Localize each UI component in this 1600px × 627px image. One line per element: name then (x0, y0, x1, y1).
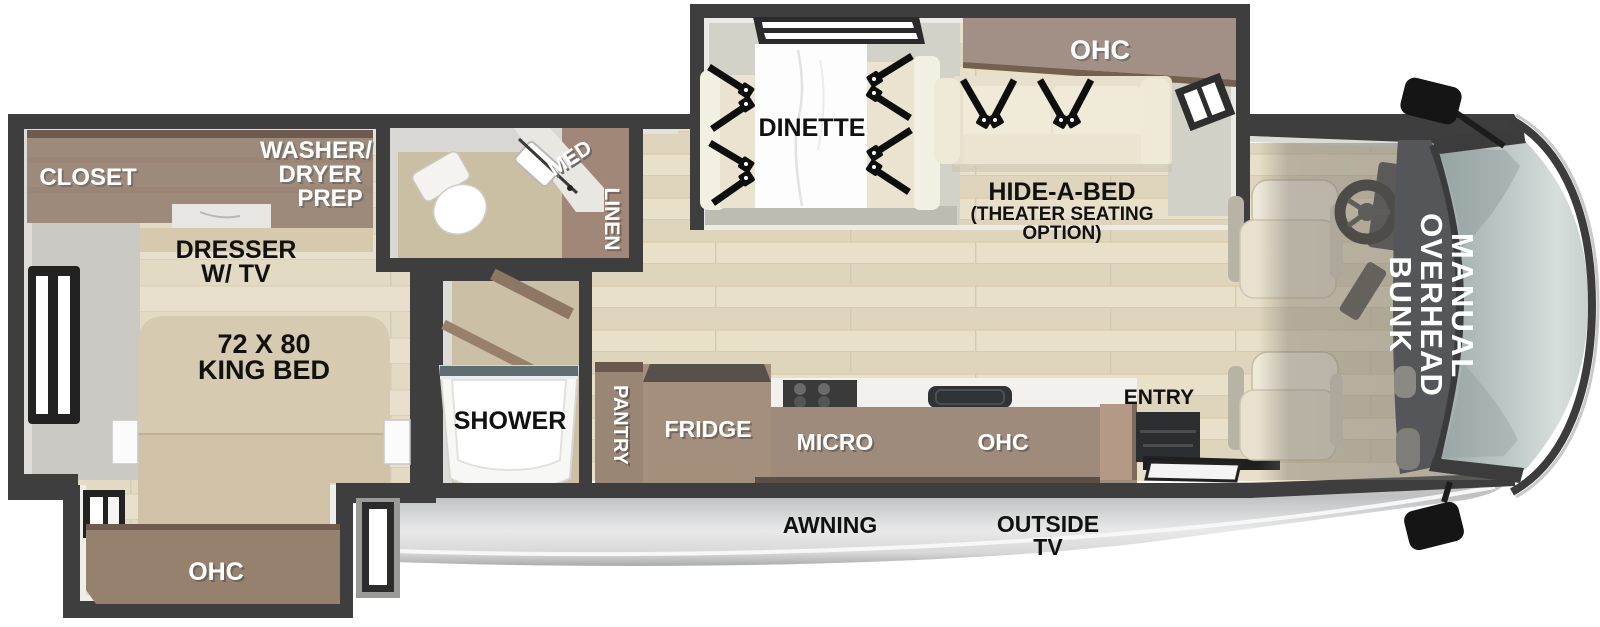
svg-text:DINETTE: DINETTE (759, 114, 866, 142)
svg-text:W/ TV: W/ TV (201, 260, 271, 288)
svg-text:OPTION): OPTION) (1022, 223, 1101, 244)
svg-text:CLOSET: CLOSET (39, 164, 137, 191)
svg-text:KING BED: KING BED (198, 355, 330, 385)
svg-text:HIDE-A-BED: HIDE-A-BED (988, 178, 1135, 206)
svg-text:LINEN: LINEN (600, 188, 623, 251)
svg-text:TV: TV (1033, 534, 1063, 560)
svg-text:DRYER: DRYER (278, 161, 361, 188)
svg-text:PANTRY: PANTRY (609, 385, 631, 466)
svg-text:OHC: OHC (1070, 35, 1130, 65)
svg-text:SHOWER: SHOWER (454, 407, 567, 435)
svg-text:PREP: PREP (297, 185, 362, 212)
svg-text:BUNK: BUNK (1383, 256, 1418, 354)
svg-text:OVERHEAD: OVERHEAD (1414, 213, 1449, 397)
svg-text:(THEATER SEATING: (THEATER SEATING (971, 204, 1154, 225)
svg-text:MICRO: MICRO (797, 429, 874, 455)
svg-text:FRIDGE: FRIDGE (665, 416, 752, 442)
svg-text:MANUAL: MANUAL (1445, 233, 1480, 379)
svg-text:WASHER/: WASHER/ (260, 137, 372, 164)
svg-text:OHC: OHC (188, 558, 244, 586)
svg-text:AWNING: AWNING (783, 512, 878, 538)
svg-text:OHC: OHC (977, 429, 1028, 455)
svg-text:ENTRY: ENTRY (1124, 386, 1194, 409)
